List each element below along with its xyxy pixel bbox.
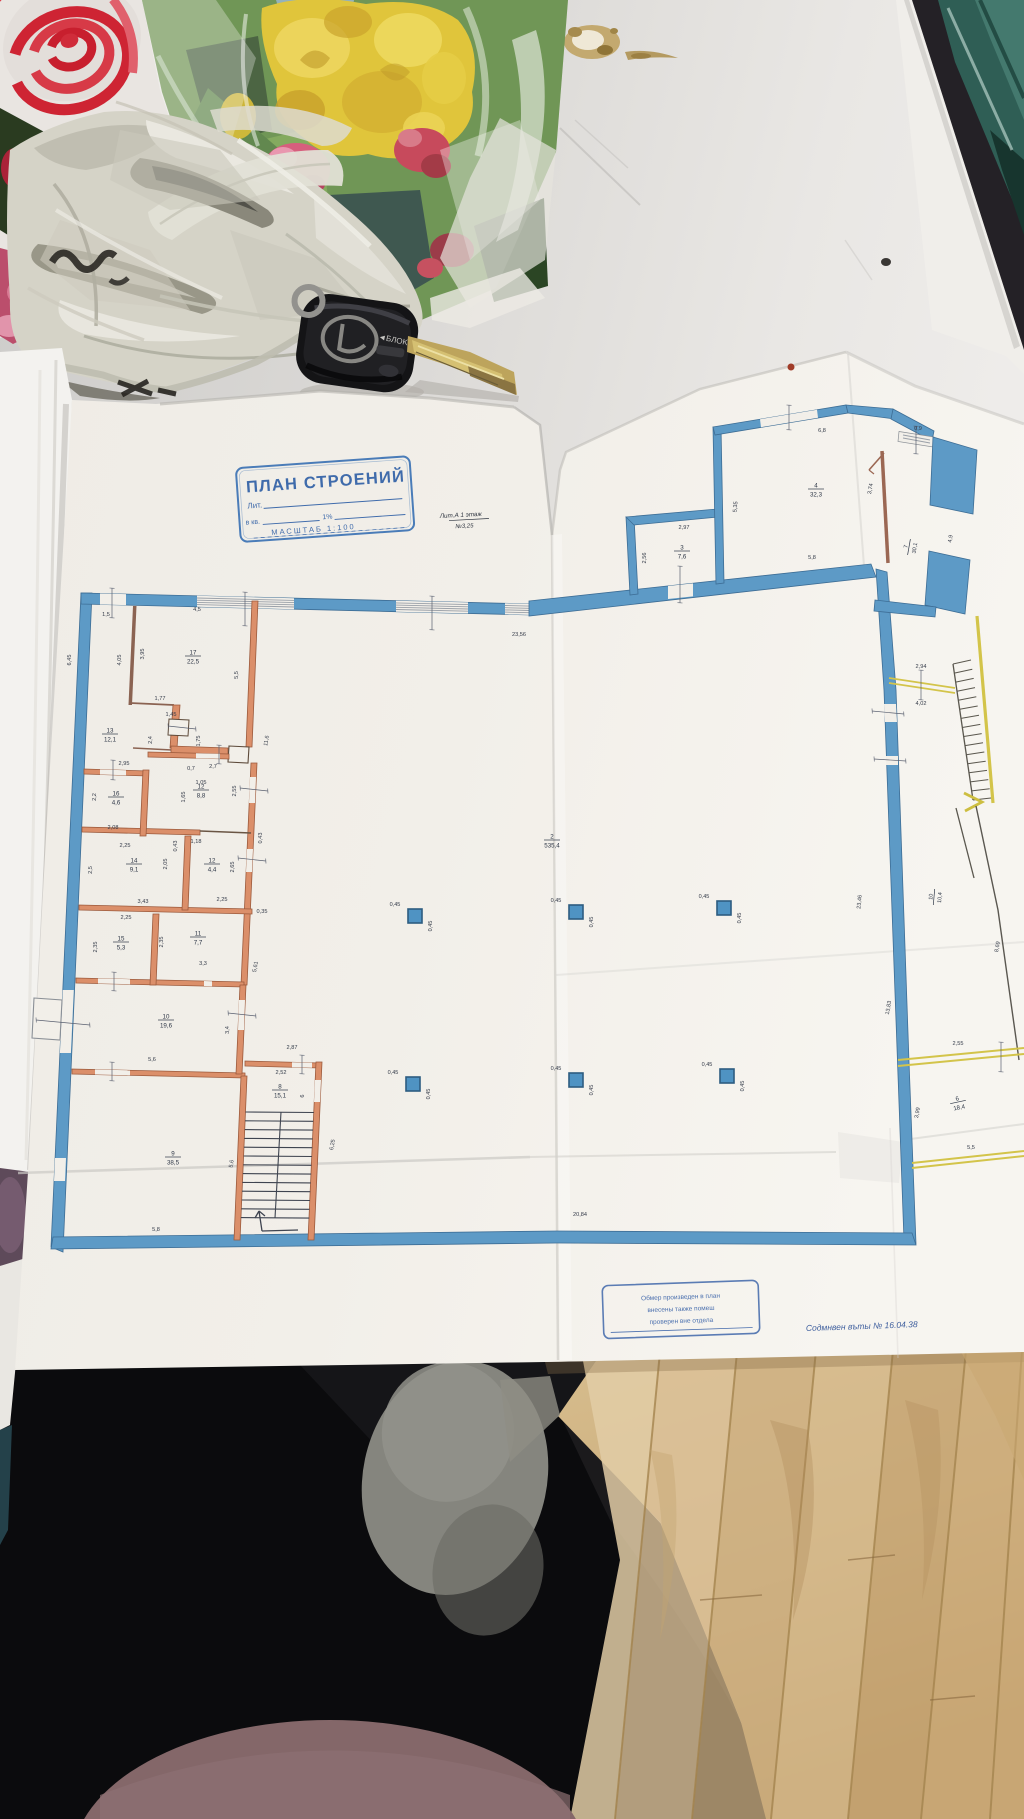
svg-text:4,02: 4,02 [916, 701, 927, 707]
svg-text:0,45: 0,45 [551, 1066, 562, 1072]
svg-text:2,7: 2,7 [209, 764, 217, 770]
svg-text:23,46: 23,46 [856, 895, 863, 909]
svg-text:1,77: 1,77 [155, 696, 166, 702]
svg-text:6,45: 6,45 [67, 655, 73, 666]
svg-text:2,25: 2,25 [217, 897, 228, 903]
svg-text:0,45: 0,45 [388, 1070, 399, 1076]
svg-text:20,84: 20,84 [573, 1212, 587, 1218]
svg-text:2,25: 2,25 [120, 843, 131, 849]
svg-text:2,55: 2,55 [953, 1041, 964, 1047]
svg-text:19,6: 19,6 [160, 1023, 173, 1030]
svg-text:6,8: 6,8 [818, 428, 826, 434]
svg-text:3: 3 [680, 545, 684, 552]
svg-text:0,45: 0,45 [390, 902, 401, 908]
svg-text:в кв.: в кв. [245, 519, 260, 527]
svg-text:15: 15 [118, 936, 125, 943]
svg-text:3,43: 3,43 [138, 899, 149, 905]
svg-text:10,4: 10,4 [937, 892, 944, 903]
svg-text:13: 13 [107, 728, 114, 735]
svg-text:1,5: 1,5 [102, 612, 110, 618]
svg-text:№3,25: №3,25 [455, 522, 474, 530]
svg-text:0,45: 0,45 [737, 913, 743, 924]
svg-text:2,95: 2,95 [119, 761, 130, 767]
svg-text:2,55: 2,55 [232, 786, 238, 797]
svg-text:2,05: 2,05 [163, 859, 169, 870]
svg-text:2,2: 2,2 [92, 793, 98, 801]
svg-text:12: 12 [209, 858, 216, 865]
svg-text:2,94: 2,94 [916, 664, 927, 670]
svg-text:1%: 1% [322, 514, 333, 522]
svg-text:2,97: 2,97 [679, 525, 690, 531]
svg-text:11: 11 [195, 931, 202, 938]
svg-text:17: 17 [190, 650, 197, 657]
svg-text:0,45: 0,45 [702, 1062, 713, 1068]
svg-text:0,45: 0,45 [428, 921, 434, 932]
svg-text:5,5: 5,5 [967, 1145, 975, 1151]
svg-text:2,35: 2,35 [93, 942, 99, 953]
svg-text:2,65: 2,65 [230, 862, 236, 873]
svg-text:5,3: 5,3 [117, 945, 126, 952]
svg-text:0,7: 0,7 [187, 766, 195, 772]
svg-text:535,4: 535,4 [544, 843, 560, 850]
svg-text:4,6: 4,6 [112, 800, 121, 807]
svg-text:2,08: 2,08 [108, 825, 119, 831]
svg-text:38,5: 38,5 [167, 1160, 180, 1167]
svg-text:5,8: 5,8 [808, 555, 816, 561]
svg-text:5,35: 5,35 [733, 501, 740, 512]
svg-text:12,1: 12,1 [104, 737, 117, 744]
svg-text:23,56: 23,56 [512, 632, 526, 638]
svg-text:2,5: 2,5 [88, 866, 94, 874]
svg-text:10: 10 [163, 1014, 170, 1021]
svg-text:5,6: 5,6 [148, 1057, 156, 1063]
svg-text:1,65: 1,65 [181, 792, 187, 803]
svg-text:1,75: 1,75 [196, 736, 202, 747]
svg-text:Лит.: Лит. [247, 500, 262, 510]
svg-text:4,5: 4,5 [193, 607, 201, 613]
svg-text:1,45: 1,45 [166, 712, 177, 718]
svg-text:1,18: 1,18 [191, 839, 202, 845]
svg-text:2,35: 2,35 [159, 937, 165, 948]
svg-text:5,5: 5,5 [234, 671, 240, 679]
svg-text:0,45: 0,45 [740, 1081, 746, 1092]
svg-text:3,95: 3,95 [140, 649, 146, 660]
svg-text:15,1: 15,1 [274, 1093, 287, 1100]
svg-text:2,87: 2,87 [287, 1045, 298, 1051]
svg-text:0,43: 0,43 [173, 841, 179, 852]
svg-text:3,4: 3,4 [225, 1026, 231, 1034]
svg-text:0,45: 0,45 [699, 894, 710, 900]
svg-text:0,45: 0,45 [589, 917, 595, 928]
svg-text:22,5: 22,5 [187, 659, 200, 666]
svg-text:2: 2 [550, 834, 554, 841]
svg-text:2,25: 2,25 [121, 915, 132, 921]
svg-text:0,45: 0,45 [551, 898, 562, 904]
svg-text:2,4: 2,4 [148, 736, 154, 744]
svg-text:0,45: 0,45 [589, 1085, 595, 1096]
svg-text:2,56: 2,56 [642, 553, 648, 564]
svg-text:9: 9 [171, 1151, 175, 1158]
svg-text:8: 8 [278, 1084, 282, 1091]
svg-text:7,6: 7,6 [678, 554, 687, 561]
svg-text:4,4: 4,4 [208, 867, 217, 874]
svg-text:0,45: 0,45 [426, 1089, 432, 1100]
svg-text:0,35: 0,35 [257, 909, 268, 915]
svg-text:0,9: 0,9 [914, 426, 922, 432]
svg-text:0,43: 0,43 [258, 833, 264, 844]
svg-text:14: 14 [131, 858, 138, 865]
svg-text:3,3: 3,3 [199, 961, 207, 967]
svg-text:5,8: 5,8 [152, 1227, 160, 1233]
svg-text:32,3: 32,3 [810, 492, 823, 499]
svg-text:4: 4 [814, 483, 818, 490]
svg-text:7,7: 7,7 [194, 940, 203, 947]
svg-text:8,8: 8,8 [197, 793, 206, 800]
svg-text:16: 16 [113, 791, 120, 798]
svg-text:9,1: 9,1 [130, 867, 139, 874]
svg-text:4,05: 4,05 [117, 655, 123, 666]
svg-text:2,52: 2,52 [276, 1070, 287, 1076]
svg-text:1,05: 1,05 [196, 780, 207, 786]
svg-text:6: 6 [300, 1094, 306, 1097]
